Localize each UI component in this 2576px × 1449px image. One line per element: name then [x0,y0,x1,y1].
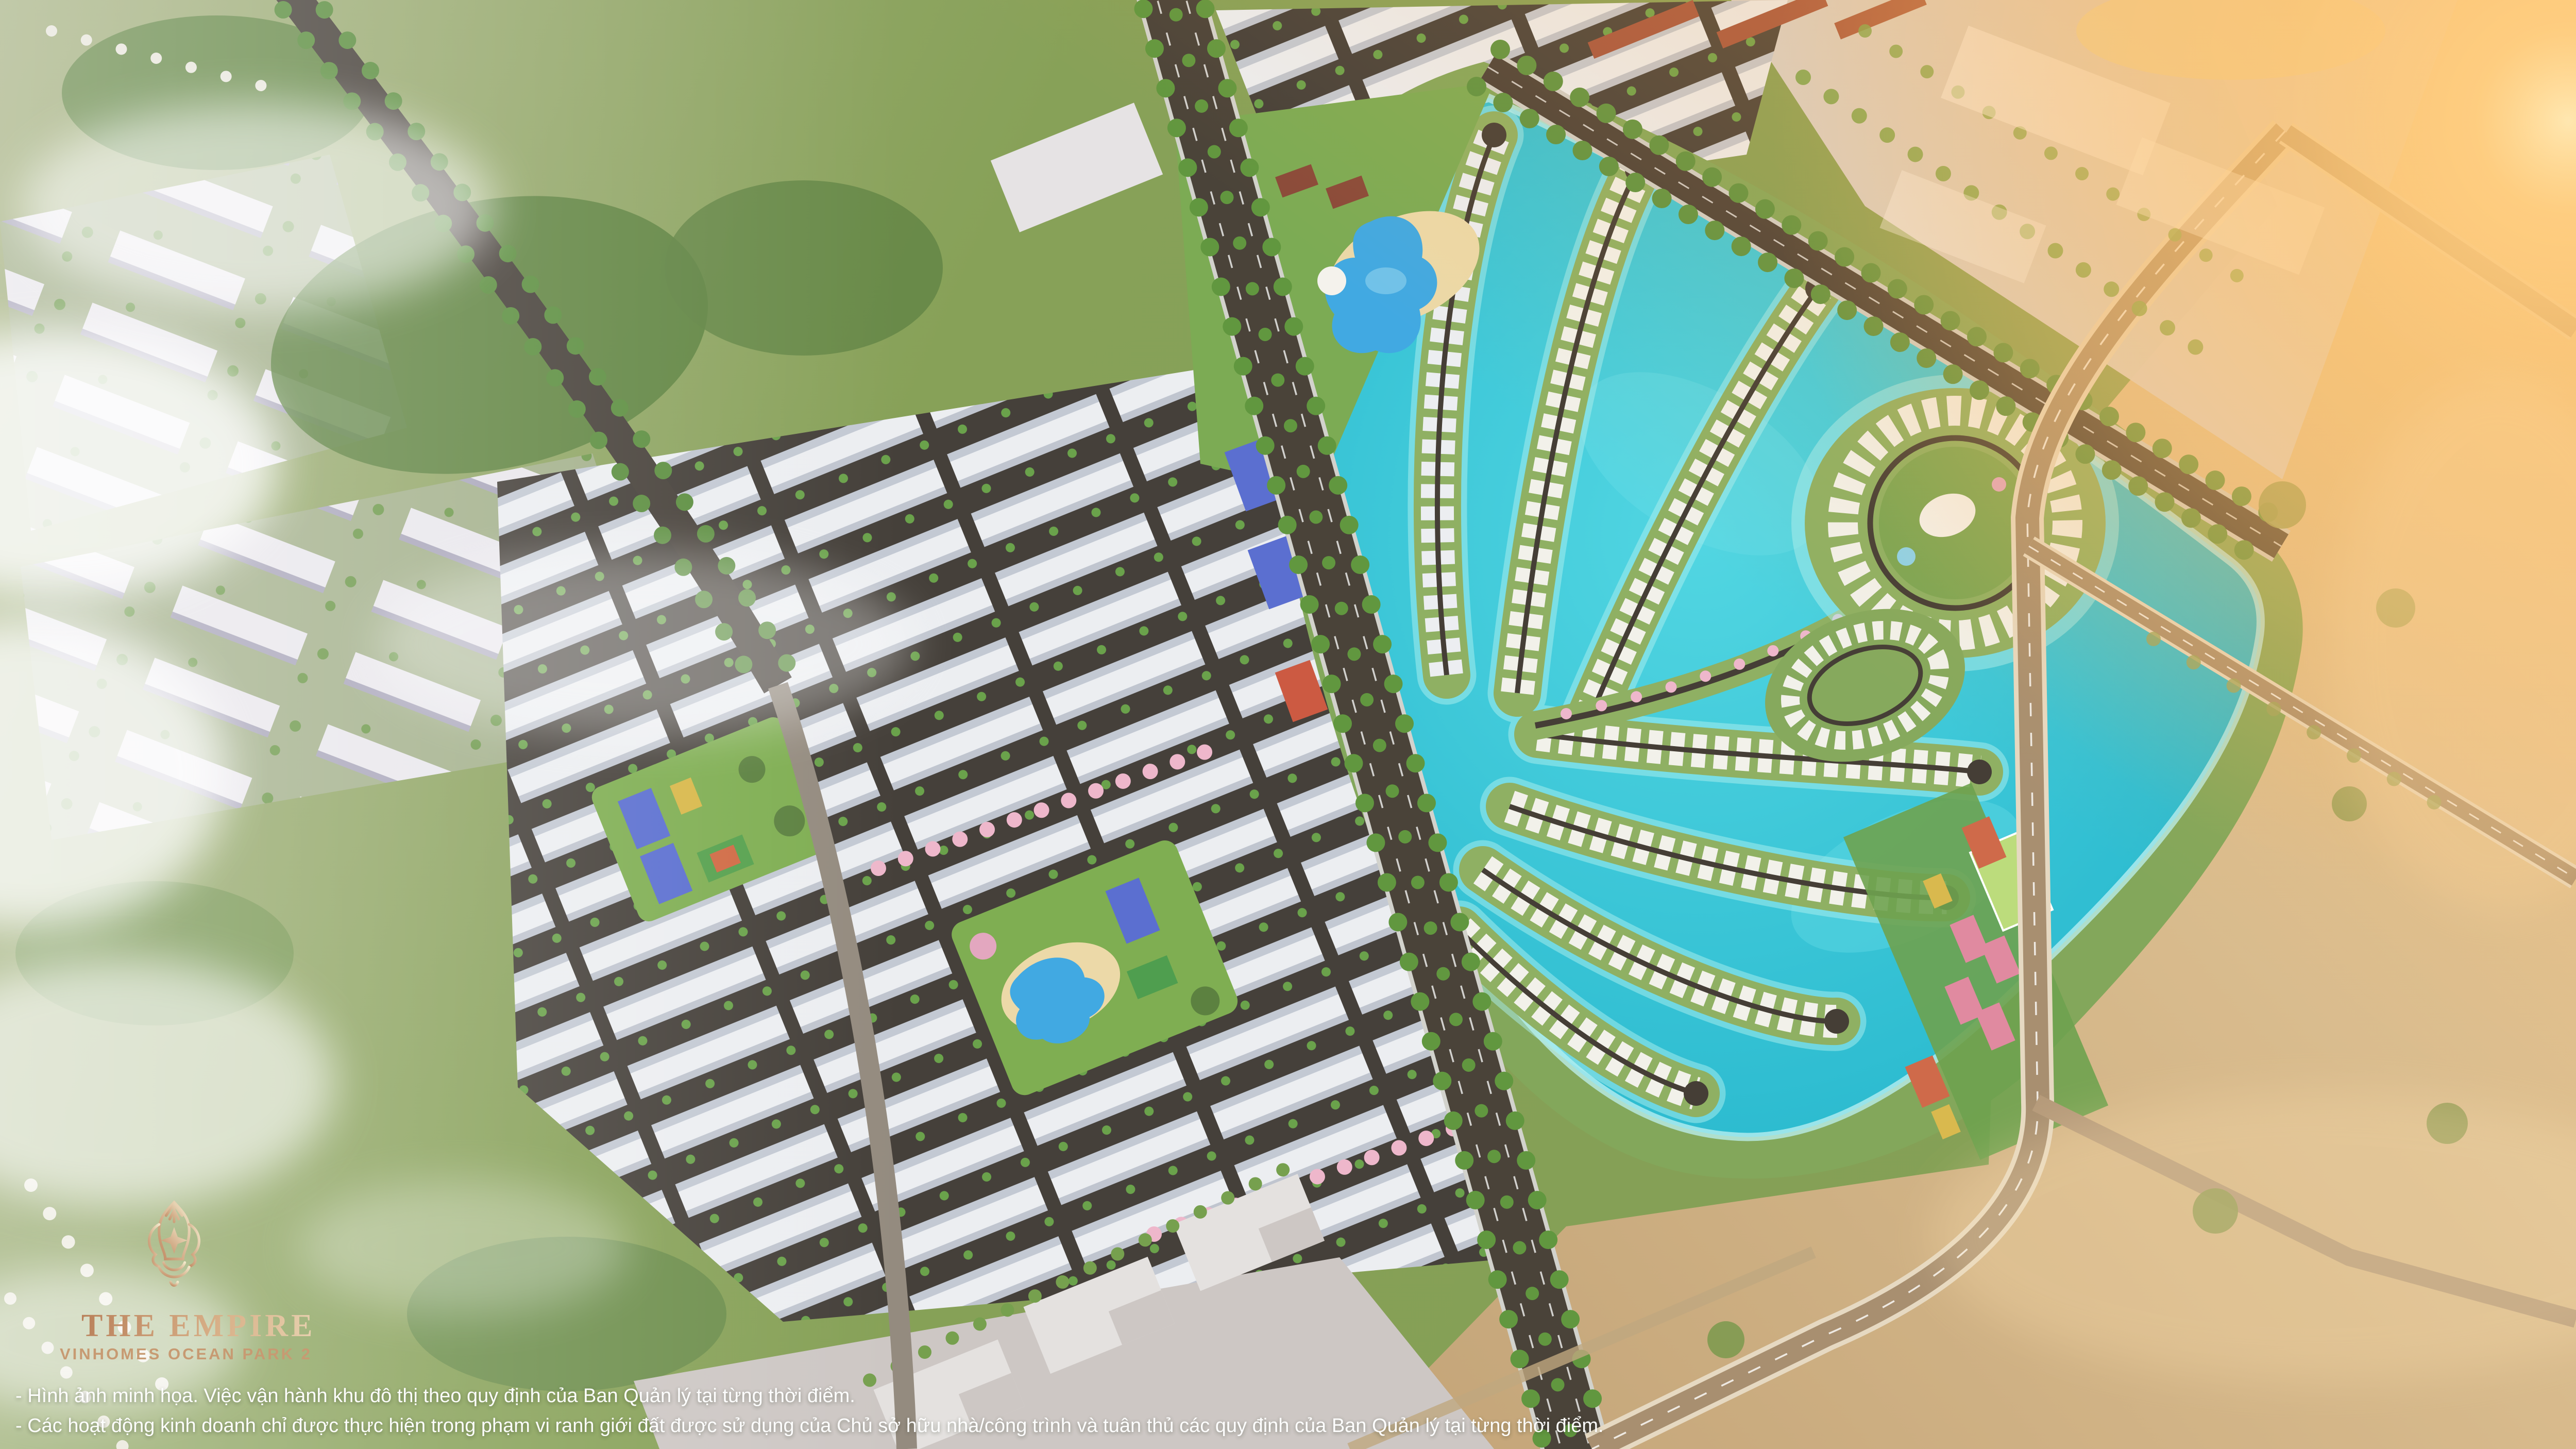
sun-flare-northeast [0,0,2576,1449]
royal-vase-crest-icon [130,1193,218,1294]
project-title: THE EMPIRE [81,1308,545,1344]
aerial-masterplan-render: THE EMPIRE VINHOMES OCEAN PARK 2 - Hình … [0,0,2576,1449]
scene-canvas [0,0,2576,1449]
vase-base [163,1262,184,1270]
disclaimer-line-1: - Hình ảnh minh họa. Việc vận hành khu đ… [15,1381,2179,1411]
project-subtitle: VINHOMES OCEAN PARK 2 [60,1345,523,1363]
right-scroll [189,1224,199,1266]
vase-foot [159,1267,189,1277]
disclaimer-line-2: - Các hoạt động kinh doanh chỉ được thực… [15,1411,2179,1441]
foot-tip [171,1282,178,1285]
crest-star [161,1227,188,1254]
legal-disclaimer: - Hình ảnh minh họa. Việc vận hành khu đ… [15,1381,2179,1441]
left-scroll [149,1224,159,1266]
